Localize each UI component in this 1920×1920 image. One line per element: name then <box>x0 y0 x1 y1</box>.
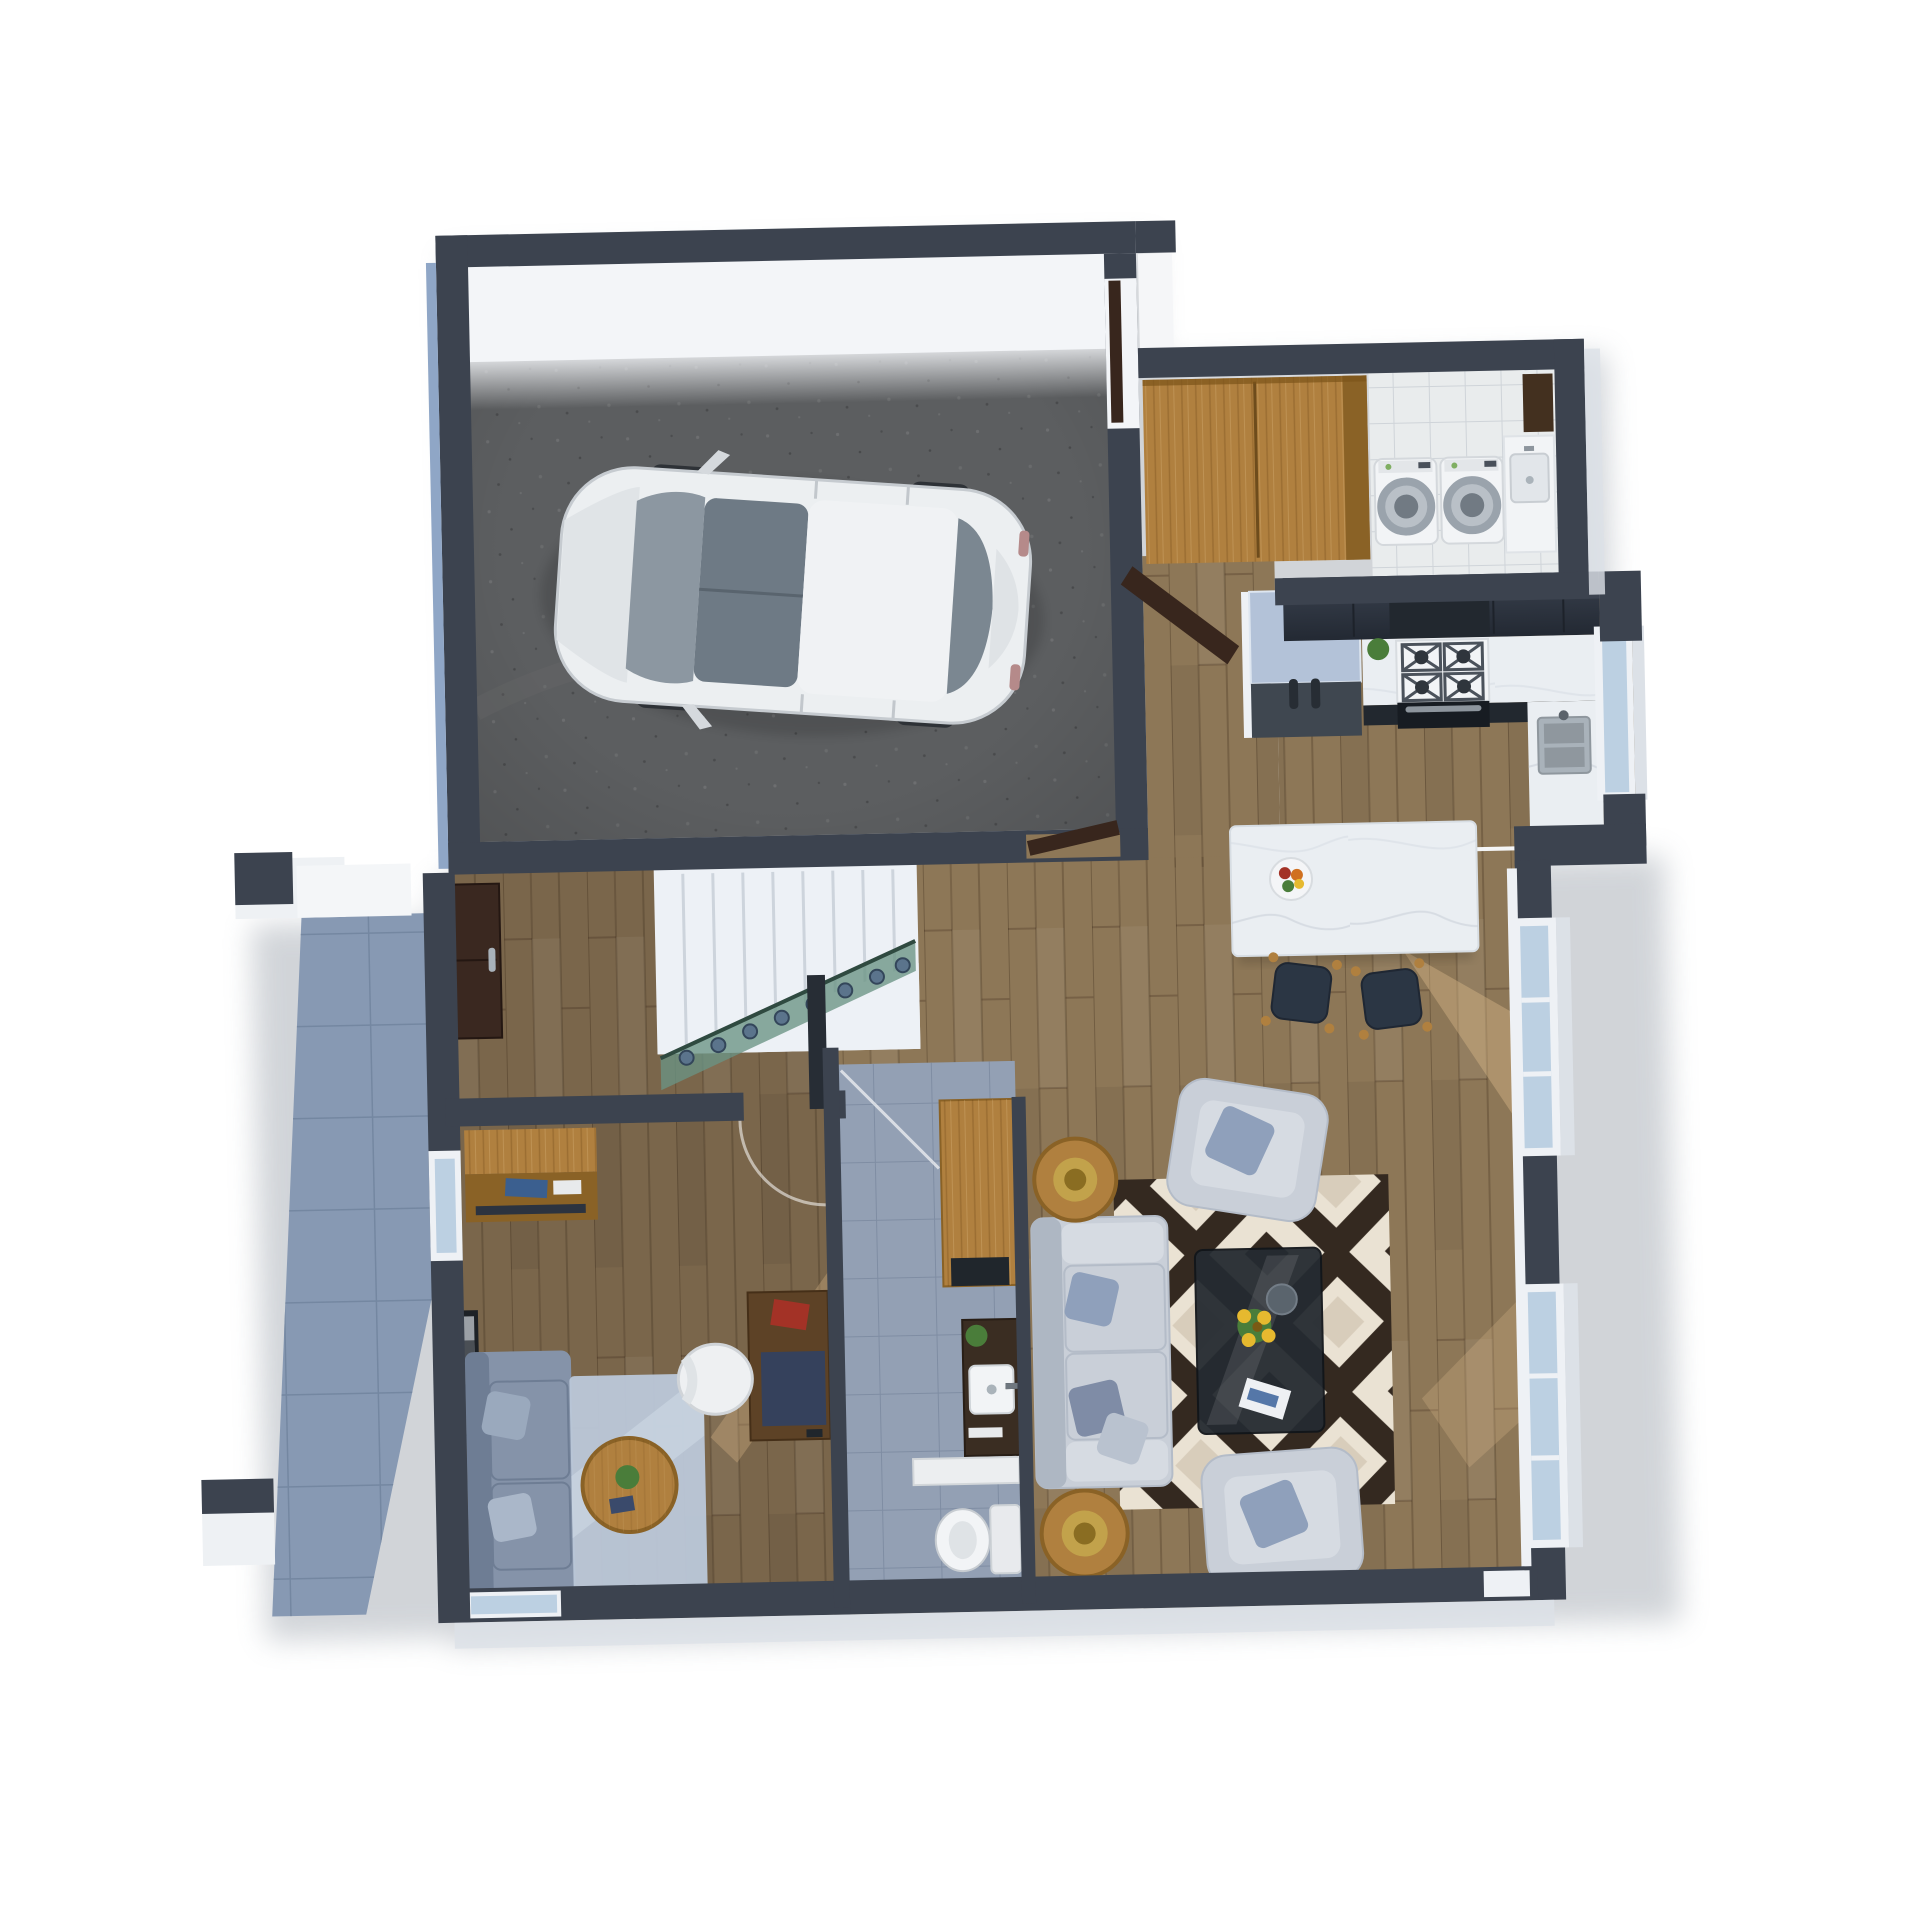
fruit-bowl <box>1270 858 1313 901</box>
desk-red-book <box>770 1299 810 1330</box>
washer <box>1374 458 1438 545</box>
toilet-tank <box>990 1505 1021 1574</box>
vanity-towel <box>968 1427 1002 1438</box>
vanity-faucet <box>1005 1383 1017 1389</box>
bathroom-door <box>913 1457 1020 1485</box>
entry-wall-stub <box>1135 220 1176 253</box>
refrigerator-handle <box>1289 679 1299 709</box>
garage-door-opening <box>466 253 1108 362</box>
sideboard-handle <box>488 948 496 972</box>
car-roof <box>797 499 960 703</box>
room-garage <box>466 253 1118 842</box>
floorplan-render <box>0 0 1920 1920</box>
desk-phone <box>806 1429 822 1437</box>
side-table-north <box>1033 1138 1117 1222</box>
coffee-table <box>1195 1248 1325 1435</box>
car-windshield <box>625 489 706 685</box>
plan-root <box>175 210 1680 1654</box>
toilet <box>935 1505 1021 1575</box>
island-top <box>1230 821 1479 956</box>
study-window-west-glass <box>435 1159 457 1253</box>
laundry-sink-counter <box>1504 435 1556 552</box>
room-bathroom <box>835 1061 1026 1605</box>
laundry-wall-east <box>1554 339 1589 600</box>
desk-chair <box>678 1343 753 1415</box>
side-table-south <box>1041 1490 1129 1578</box>
patio-planter <box>297 863 412 917</box>
armchair-north <box>1164 1075 1332 1224</box>
shelf-papers <box>553 1180 581 1195</box>
laundry-upper-cabinet <box>1522 373 1553 432</box>
dryer <box>1440 457 1504 544</box>
study-desk <box>748 1291 831 1441</box>
wall-shelf <box>464 1128 598 1223</box>
console-dark-object <box>951 1257 1010 1286</box>
table-glass-bowl <box>1266 1284 1297 1315</box>
study-sofa-pillow-1 <box>480 1390 531 1441</box>
study-round-table <box>582 1437 678 1533</box>
study-sofa-pillow-2 <box>486 1492 538 1544</box>
nook-wall-south <box>1514 824 1647 867</box>
living-sofa <box>1031 1216 1173 1489</box>
shelf-laptop <box>505 1178 548 1198</box>
living-sofa-arm-n <box>1061 1222 1164 1264</box>
room-laundry <box>1142 369 1558 581</box>
kitchen-window-glass <box>1602 634 1629 792</box>
gas-cooktop <box>1396 639 1489 703</box>
console-table <box>940 1099 1018 1287</box>
refrigerator-front <box>1251 682 1362 738</box>
wardrobe-side-shade <box>1342 375 1370 559</box>
car-taillight-right <box>1009 664 1021 691</box>
study-window-south <box>469 1593 559 1617</box>
sunflower-bouquet <box>1237 1308 1276 1347</box>
corner-window-south <box>1484 1570 1531 1597</box>
kitchen-sink <box>1538 710 1591 774</box>
living-window-south <box>1520 1283 1584 1548</box>
wardrobe <box>1143 375 1371 564</box>
patio-wall-cap <box>234 852 293 905</box>
vanity <box>962 1319 1021 1456</box>
kitchen-island <box>1230 821 1479 964</box>
desk-mat <box>761 1351 827 1426</box>
refrigerator-handle-2 <box>1311 678 1321 708</box>
study-sofa <box>465 1350 576 1598</box>
laundry-faucet <box>1524 446 1534 451</box>
patio-pillar-lower-cap <box>201 1479 274 1515</box>
car-taillight-left <box>1018 530 1030 557</box>
kitchen-wall-ne <box>1599 571 1642 642</box>
armchair-south <box>1200 1446 1365 1589</box>
kitchen-window <box>1594 626 1648 801</box>
floorplan-svg <box>0 0 1920 1920</box>
living-window-north <box>1512 917 1575 1156</box>
entry-porch <box>1138 253 1174 350</box>
oven <box>1397 701 1490 729</box>
living-sofa-back <box>1031 1218 1067 1489</box>
